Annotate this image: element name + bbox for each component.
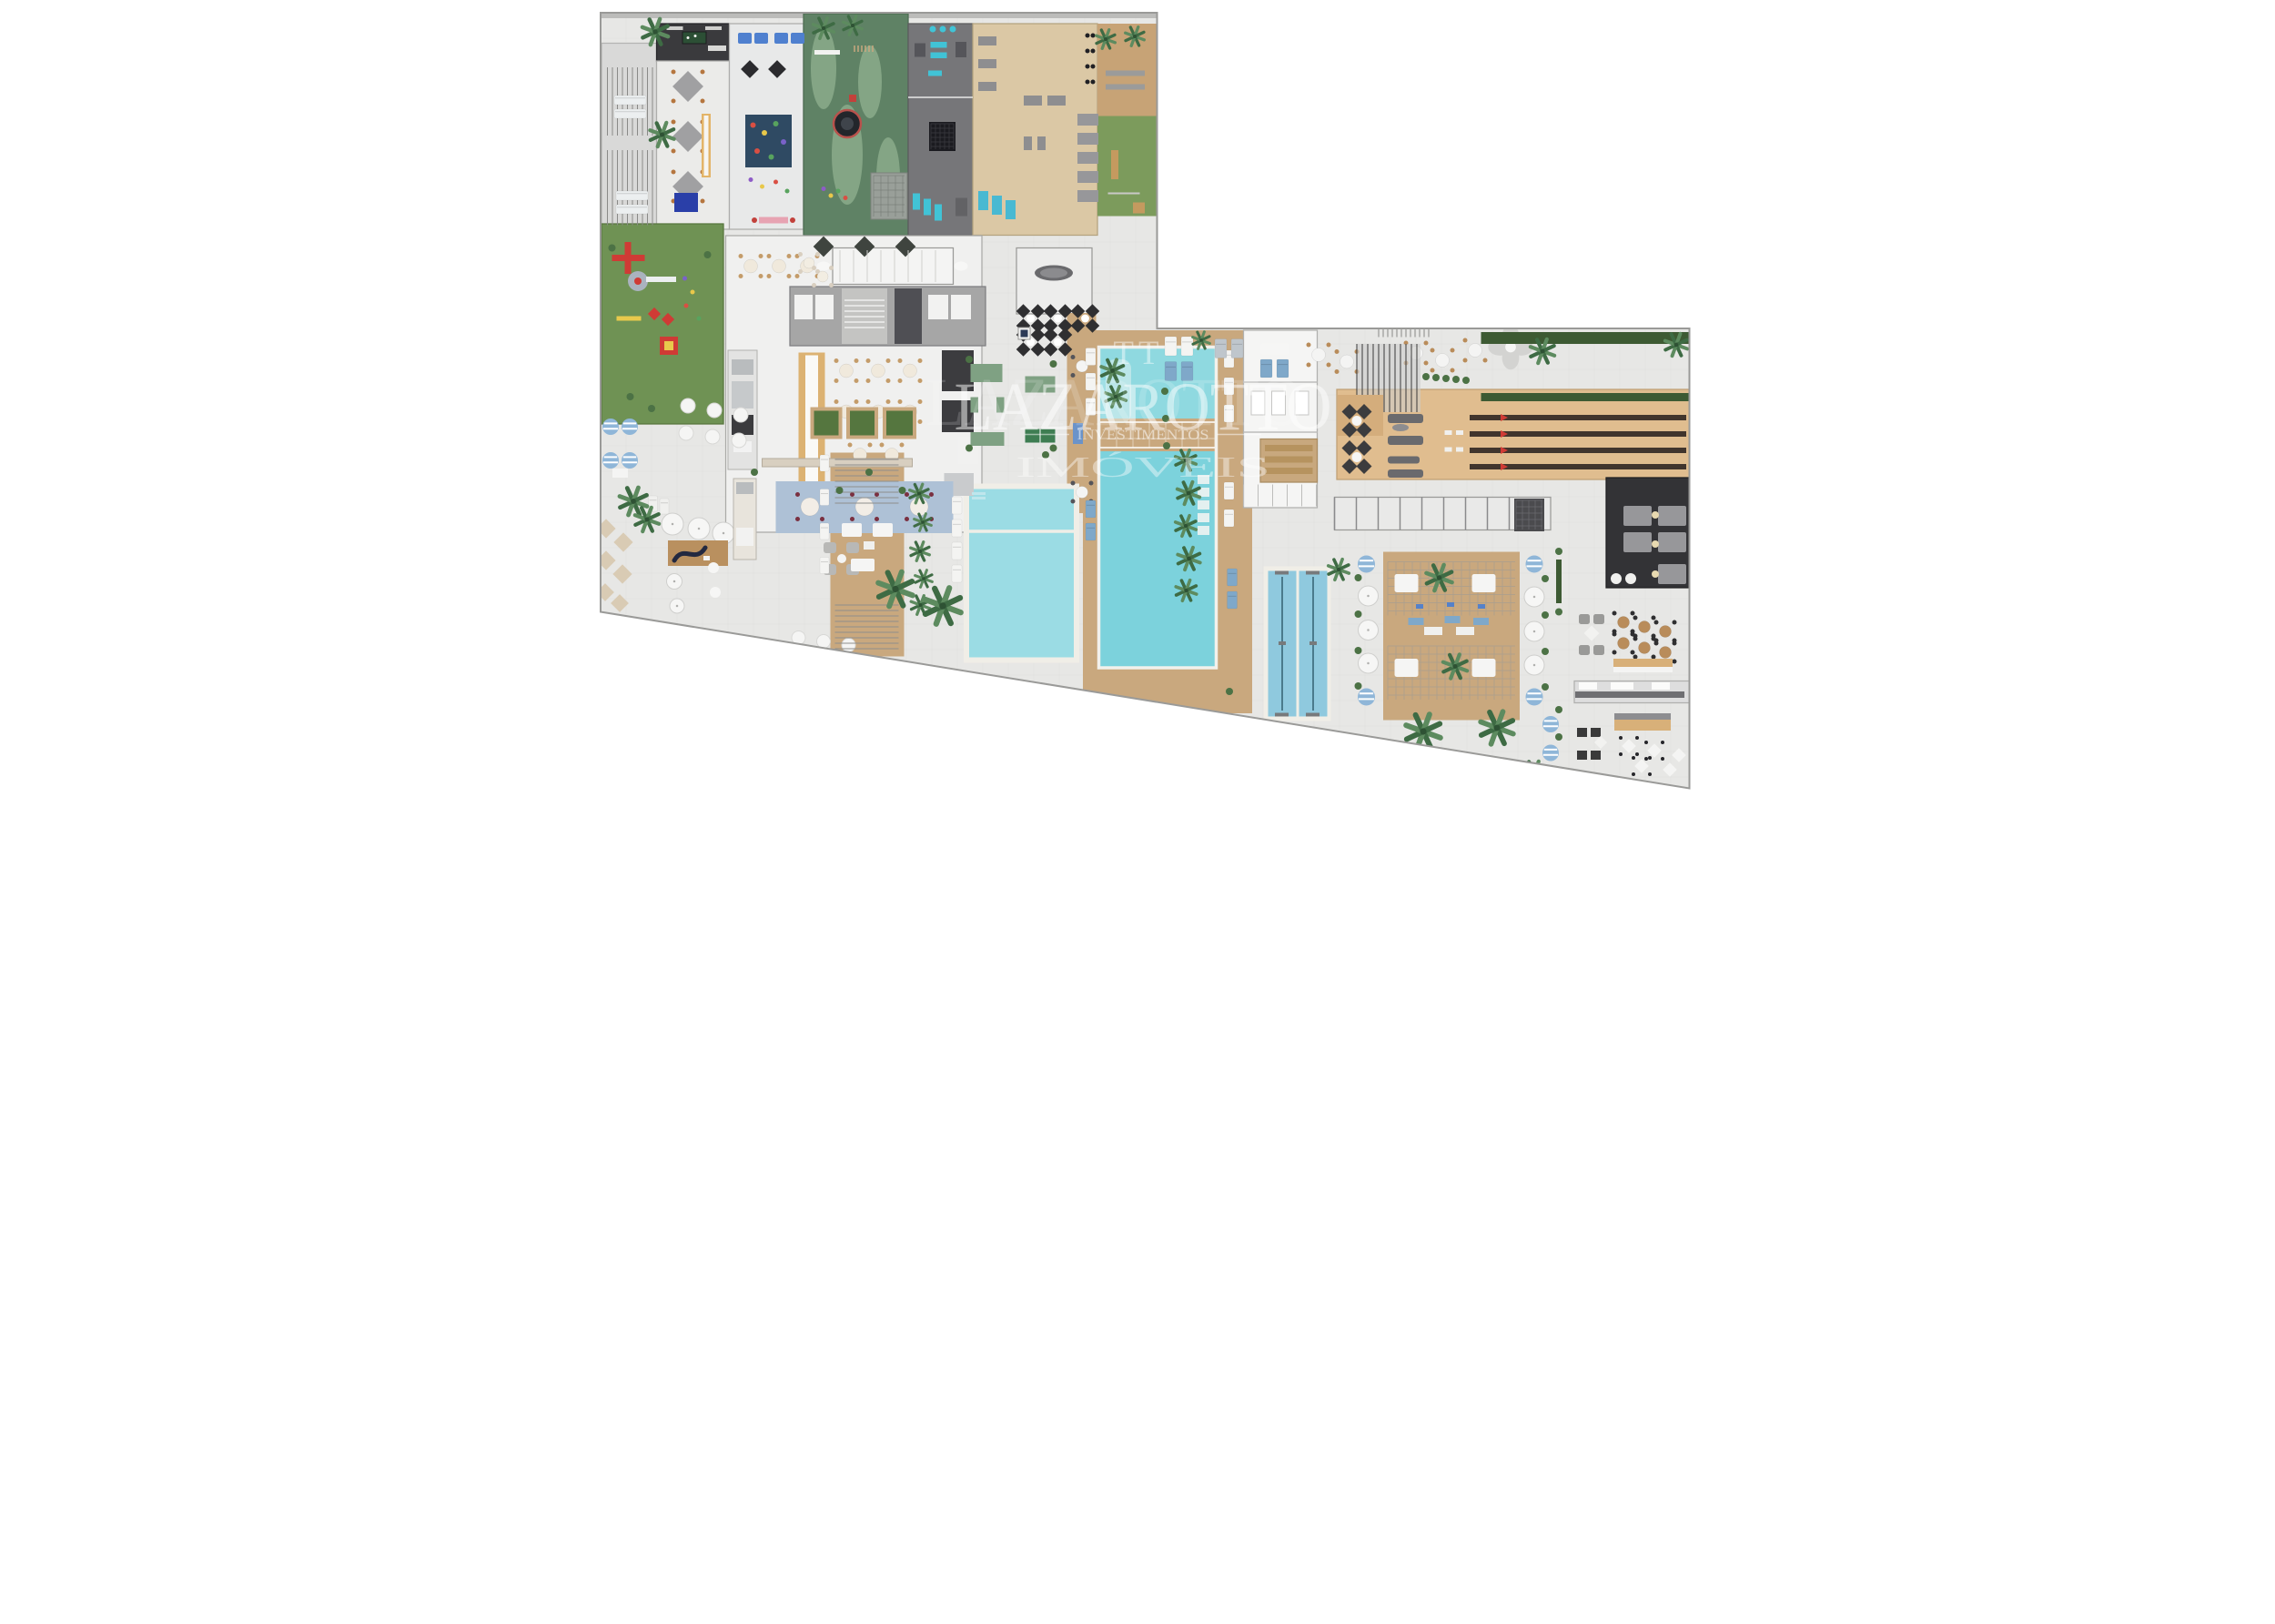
- gourmet-table-chair: [929, 492, 934, 497]
- dining-table-chair: [900, 443, 905, 448]
- machine-mat: [1077, 190, 1098, 202]
- bistro-table-chair: [1631, 611, 1635, 616]
- deck-sofa: [1395, 659, 1419, 677]
- patio-table: [817, 635, 831, 649]
- bush: [1442, 375, 1450, 382]
- kitchen-cell: [1611, 682, 1633, 690]
- trampoline-center: [841, 117, 854, 130]
- pub-shelf: [705, 26, 722, 30]
- bush: [1355, 574, 1362, 581]
- bistro-table-chair: [1633, 616, 1638, 620]
- palm-trunk: [1337, 568, 1340, 571]
- checker-chairs: [1648, 756, 1652, 760]
- score-table: [1456, 448, 1463, 452]
- terrace-table-chair: [1327, 343, 1331, 348]
- sun-lounger: [1231, 339, 1243, 358]
- terrace-table-chair: [1483, 358, 1488, 363]
- gym-mat-cyan: [935, 205, 942, 221]
- bush: [1555, 548, 1562, 555]
- dining-table-chair: [918, 358, 923, 363]
- sun-lounger: [1181, 337, 1193, 356]
- dining-table-chair: [759, 274, 763, 278]
- dining-table-chair: [898, 399, 903, 404]
- white-parasol-pole: [1367, 629, 1370, 631]
- deck-table-chair: [1071, 355, 1076, 359]
- sun-lounger: [952, 542, 962, 560]
- striped-parasol: [622, 452, 638, 469]
- play-ball: [762, 130, 767, 136]
- patio-table: [679, 426, 693, 440]
- checker-chairs: [1661, 757, 1664, 761]
- dining-table: [872, 364, 885, 378]
- gourmet-table-chair: [875, 492, 879, 497]
- storage-room: [1514, 499, 1544, 531]
- pool-step: [972, 492, 986, 495]
- outdoor-station: [1106, 71, 1145, 76]
- terrace-table-chair: [1431, 368, 1435, 373]
- buffet-top: [704, 116, 709, 176]
- billiard-ball: [687, 36, 690, 39]
- terrace-table-chair: [1327, 363, 1331, 368]
- machine-station: [1024, 96, 1042, 106]
- sun-lounger: [1228, 569, 1238, 586]
- pink-bench: [759, 217, 788, 224]
- machine-mat: [1077, 152, 1098, 164]
- terrace-table-chair: [1424, 341, 1429, 346]
- relax-sofa: [1260, 344, 1289, 355]
- dining-table-chair: [866, 399, 871, 404]
- watermark-category: IMÓVEIS: [1016, 450, 1270, 483]
- gym-ball: [930, 26, 936, 33]
- bush: [1355, 682, 1362, 690]
- blue-sofa: [791, 33, 804, 44]
- play-dot: [697, 317, 702, 321]
- bistro-table-chair: [1654, 641, 1659, 646]
- dining-table-chair: [787, 274, 792, 278]
- dining-table-chair: [767, 274, 772, 278]
- palm-trunk: [822, 26, 825, 30]
- zone-meeting-room: [1016, 248, 1092, 315]
- palm-trunk: [917, 492, 921, 496]
- floorplan-stage: TT LAZAROTTO LAZAROTTO INVESTIMENTOS IMÓ…: [569, 0, 1706, 812]
- dining-table-chair: [759, 254, 763, 258]
- booth-lamp: [1652, 511, 1659, 519]
- machine-station: [978, 82, 996, 91]
- lounge-table: [837, 554, 846, 563]
- dining-table-chair: [739, 254, 743, 258]
- palm-trunk: [1540, 348, 1544, 353]
- bush: [1422, 373, 1430, 380]
- dining-table-chair: [866, 358, 871, 363]
- pink-bench-end: [752, 217, 757, 223]
- machine-station: [1024, 136, 1032, 150]
- pool-step: [972, 497, 986, 499]
- play-ball: [781, 139, 786, 145]
- checker-chairs: [1635, 736, 1639, 740]
- blue-sofa: [754, 33, 768, 44]
- deck-pad-blue: [1478, 604, 1485, 609]
- party-chairs: [672, 70, 676, 75]
- pink-bench-end: [790, 217, 795, 223]
- play-ball: [785, 189, 790, 194]
- hedge-row: [1481, 393, 1690, 401]
- gym-machine: [955, 198, 967, 217]
- party-rug: [674, 193, 698, 212]
- sun-lounger: [1224, 509, 1234, 527]
- bistro-table: [1618, 638, 1630, 650]
- bowling-sofa: [1388, 436, 1423, 445]
- bistro-table-chair: [1613, 632, 1617, 637]
- palm-frond: [1534, 768, 1546, 773]
- dining-table-chair: [898, 378, 903, 383]
- palm-trunk: [1494, 725, 1501, 731]
- gourmet-table-chair: [905, 517, 909, 521]
- candy-item: [829, 194, 834, 198]
- bush: [966, 356, 973, 363]
- dining-table-chair: [886, 399, 891, 404]
- terrace-table-chair: [1463, 358, 1468, 363]
- bush: [1555, 706, 1562, 713]
- bush: [1462, 377, 1470, 384]
- dining-table-chair: [868, 443, 873, 448]
- lobby-table-chair: [829, 283, 834, 287]
- bush: [1542, 683, 1549, 691]
- planter-green: [850, 411, 875, 436]
- deck-sofa: [851, 559, 875, 571]
- palm-trunk: [1104, 37, 1107, 41]
- bush: [865, 469, 873, 476]
- sun-lounger: [1086, 500, 1096, 518]
- bush: [1452, 376, 1460, 383]
- billiard-table: [682, 32, 706, 44]
- dining-table-chair: [898, 358, 903, 363]
- cafe-table-set-table: [1054, 315, 1062, 323]
- white-parasol-pole: [1367, 662, 1370, 665]
- striped-parasol: [1526, 556, 1543, 573]
- dining-table-chair: [795, 274, 800, 278]
- bistro-table-chair: [1673, 641, 1677, 646]
- dumbbell-pair: [1091, 49, 1096, 54]
- palm-trunk: [1187, 557, 1191, 561]
- party-chairs: [672, 99, 676, 104]
- lounge-armchair: [824, 542, 836, 553]
- palm-trunk: [918, 550, 922, 553]
- sun-lounger: [614, 96, 646, 105]
- checker-chairs: [1648, 772, 1652, 776]
- bistro-table-chair: [1633, 637, 1638, 641]
- machine-station: [978, 59, 996, 68]
- white-parasol-pole: [723, 532, 725, 535]
- sauna-bench: [1265, 468, 1313, 474]
- lap-pool-block: [1306, 713, 1319, 717]
- palm-trunk: [921, 520, 925, 524]
- striped-parasol: [622, 419, 638, 435]
- bowling-sofa: [1388, 469, 1423, 478]
- party-chairs: [672, 170, 676, 175]
- sun-lounger: [952, 497, 962, 514]
- checker-chairs: [1644, 741, 1648, 744]
- dining-table: [744, 259, 758, 273]
- palm-trunk: [631, 499, 636, 504]
- kitchen-cell: [1579, 682, 1597, 690]
- candy-item: [822, 187, 826, 191]
- swing-frame: [646, 277, 676, 282]
- terrace-table-chair: [1307, 363, 1311, 368]
- zone-family-pool: [969, 489, 1074, 658]
- bush: [704, 251, 712, 258]
- bistro-table-chair: [1633, 655, 1638, 660]
- bistro-table: [1660, 647, 1672, 659]
- dining-table-chair: [886, 378, 891, 383]
- palm-trunk: [1420, 728, 1426, 734]
- zone-calisthenics-lawn: [1097, 116, 1158, 217]
- side-table: [708, 562, 719, 573]
- bistro-table: [1639, 621, 1651, 633]
- zone-gym-machines: [973, 24, 1097, 236]
- bistro-table-chair: [1654, 620, 1659, 625]
- palm-trunk: [1184, 524, 1188, 528]
- white-parasol-pole: [676, 605, 679, 608]
- bistro-table-chair: [1673, 660, 1677, 664]
- bowling-table: [1352, 416, 1362, 426]
- bush: [627, 393, 634, 400]
- palm-trunk: [1187, 491, 1191, 496]
- striped-parasol: [602, 419, 619, 435]
- lobby-table-chair: [798, 252, 803, 257]
- play-dot: [682, 277, 687, 281]
- palm-trunk: [892, 586, 898, 592]
- palm-frond: [1522, 769, 1534, 773]
- palm-trunk: [1437, 575, 1441, 580]
- party-chairs: [701, 99, 705, 104]
- patio-table: [732, 433, 746, 448]
- sun-lounger: [1165, 337, 1177, 356]
- party-chairs: [701, 70, 705, 75]
- bush: [1542, 611, 1549, 619]
- gourmet-table: [801, 498, 819, 516]
- dining-table-chair: [918, 378, 923, 383]
- lobby-table-chair: [815, 252, 820, 257]
- gourmet-table-chair: [905, 492, 909, 497]
- bush: [1555, 609, 1562, 616]
- white-parasol-pole: [1533, 630, 1536, 633]
- in-pool-lounger: [1198, 513, 1209, 522]
- lawn-bench: [1111, 150, 1118, 179]
- machine-station: [1037, 136, 1046, 150]
- dumbbell-pair: [1086, 49, 1090, 54]
- palm-frond: [1534, 773, 1546, 778]
- dining-table: [840, 364, 854, 378]
- gym-lounger-cyan: [992, 196, 1002, 215]
- lobby-table-chair: [812, 266, 816, 270]
- play-ball: [769, 155, 774, 160]
- palm-trunk: [1674, 343, 1679, 348]
- deck-sofa: [1472, 659, 1496, 677]
- palm-trunk: [851, 24, 854, 27]
- lap-pool-block: [1275, 571, 1289, 575]
- lobby-table-chair: [812, 283, 816, 287]
- hedge-column: [1556, 560, 1562, 603]
- play-ball: [760, 185, 764, 189]
- dining-table-chair: [834, 378, 839, 383]
- pub-table: [1625, 573, 1636, 584]
- sun-lounger: [616, 191, 648, 200]
- side-table: [703, 556, 710, 560]
- booth-seat: [1623, 506, 1652, 526]
- bush: [1226, 688, 1233, 695]
- bistro-table: [1618, 617, 1630, 629]
- kitchen-cell: [1652, 682, 1670, 690]
- checker-chairs: [1632, 772, 1635, 776]
- in-pool-lounger: [1198, 526, 1209, 535]
- booth-seat: [1658, 532, 1686, 552]
- cafe-table-set-table: [1081, 315, 1089, 323]
- party-chairs: [672, 149, 676, 154]
- play-ball: [754, 148, 760, 154]
- hedge-planter: [1481, 332, 1690, 344]
- seesaw: [617, 317, 642, 321]
- patio-table: [707, 403, 722, 418]
- gourmet-table-chair: [850, 492, 854, 497]
- patio-table: [820, 655, 834, 669]
- watermark-division: INVESTIMENTOS: [1077, 428, 1209, 443]
- blue-sofa: [774, 33, 788, 44]
- deck-table-chair: [1071, 499, 1076, 504]
- kitchen-fridge: [732, 381, 753, 409]
- dark-table: [1577, 751, 1587, 760]
- palm-trunk: [1452, 664, 1457, 669]
- play-dot: [691, 290, 695, 295]
- dumbbell-pair: [1086, 80, 1090, 85]
- gym-mat-cyan: [924, 199, 931, 216]
- elevator-cab: [815, 295, 834, 319]
- palm-trunk: [660, 132, 664, 136]
- bush: [966, 445, 973, 452]
- bowling-sofa: [1388, 414, 1423, 423]
- play-ball: [749, 177, 753, 182]
- bistro-table-chair: [1631, 651, 1635, 655]
- sun-lounger: [1224, 482, 1234, 499]
- dining-table: [904, 364, 917, 378]
- planter-green: [886, 411, 913, 436]
- bistro-bar-front: [1613, 667, 1673, 672]
- dumbbell-pair: [1091, 34, 1096, 38]
- floorplan-rendering: TT LAZAROTTO LAZAROTTO INVESTIMENTOS IMÓ…: [569, 0, 1706, 812]
- deck-table: [1077, 487, 1088, 499]
- deck-pad-blue: [1416, 604, 1423, 609]
- lounge-armchair: [1593, 614, 1604, 624]
- dining-table-chair: [767, 254, 772, 258]
- bistro-table-chair: [1613, 611, 1617, 616]
- terrace-table-chair: [1451, 348, 1455, 353]
- gym-machine: [915, 44, 925, 57]
- dumbbell-pair: [1086, 65, 1090, 69]
- sun-lounger: [660, 499, 669, 514]
- dining-table-chair: [880, 443, 885, 448]
- candy-item: [844, 196, 848, 200]
- cafe-table-set-table: [1054, 338, 1062, 347]
- deck-sofa: [1472, 574, 1496, 592]
- sun-lounger: [1215, 339, 1227, 358]
- bistro-table-chair: [1652, 655, 1656, 660]
- white-parasol-pole: [1367, 595, 1370, 598]
- dining-table-chair: [834, 358, 839, 363]
- play-ball: [751, 123, 756, 128]
- white-parasol-pole: [672, 523, 674, 526]
- sun-lounger: [820, 558, 829, 574]
- palm-frond: [1534, 773, 1540, 785]
- dining-table-chair: [787, 254, 792, 258]
- palm-trunk: [652, 29, 657, 34]
- white-parasol-pole: [673, 580, 676, 583]
- back-counter-appliance: [736, 482, 753, 494]
- service-shaft: [895, 288, 922, 344]
- striped-parasol: [1358, 689, 1375, 706]
- lounge-armchair: [1579, 645, 1590, 655]
- candy-item: [836, 189, 841, 194]
- patio-table: [842, 639, 855, 652]
- terrace-table-chair: [1424, 361, 1429, 366]
- party-chairs: [672, 120, 676, 125]
- dining-table-chair: [739, 274, 743, 278]
- dining-table-chair: [866, 378, 871, 383]
- machine-station: [978, 36, 996, 45]
- sun-lounger: [820, 523, 829, 540]
- bush: [648, 405, 655, 412]
- score-table: [1456, 430, 1463, 435]
- elevator-cab: [794, 295, 813, 319]
- checker-chairs: [1619, 736, 1623, 740]
- booth-seat: [1623, 532, 1652, 552]
- gourmet-table: [855, 498, 874, 516]
- sun-lounger: [952, 519, 962, 537]
- dining-table-chair: [918, 399, 923, 404]
- deck-table: [864, 541, 875, 550]
- gym-bench-cyan: [931, 53, 947, 59]
- restroom-sink: [817, 262, 831, 271]
- dark-table: [1591, 728, 1601, 737]
- gourmet-table-chair: [850, 517, 854, 521]
- bistro-table-chair: [1673, 620, 1677, 625]
- dark-table: [1591, 751, 1601, 760]
- gym-ball: [950, 26, 956, 33]
- gourmet-table-chair: [795, 517, 800, 521]
- planter-green: [814, 411, 839, 436]
- deck-pad-blue: [1447, 602, 1454, 607]
- gym-lounger-cyan: [978, 191, 988, 210]
- machine-mat: [1077, 133, 1098, 145]
- white-parasol-pole: [1533, 664, 1536, 667]
- bush: [1542, 575, 1549, 582]
- striped-parasol: [602, 452, 619, 469]
- sun-lounger: [614, 109, 646, 118]
- gym-mat-cyan: [913, 194, 920, 210]
- deck-pad-blue: [1445, 616, 1461, 623]
- side-table: [710, 587, 721, 598]
- bistro-table: [1639, 642, 1651, 654]
- gourmet-table-chair: [820, 517, 824, 521]
- billiard-ball: [694, 35, 697, 37]
- gym-ball: [940, 26, 946, 33]
- palm-trunk: [1184, 589, 1188, 592]
- dumbbell-pair: [1091, 80, 1096, 85]
- terrace-table-chair: [1463, 338, 1468, 343]
- back-counter-appliance: [736, 528, 753, 546]
- sun-lounger: [616, 205, 648, 214]
- bush: [751, 469, 758, 476]
- bistro-table-chair: [1631, 632, 1635, 637]
- bush: [899, 487, 906, 494]
